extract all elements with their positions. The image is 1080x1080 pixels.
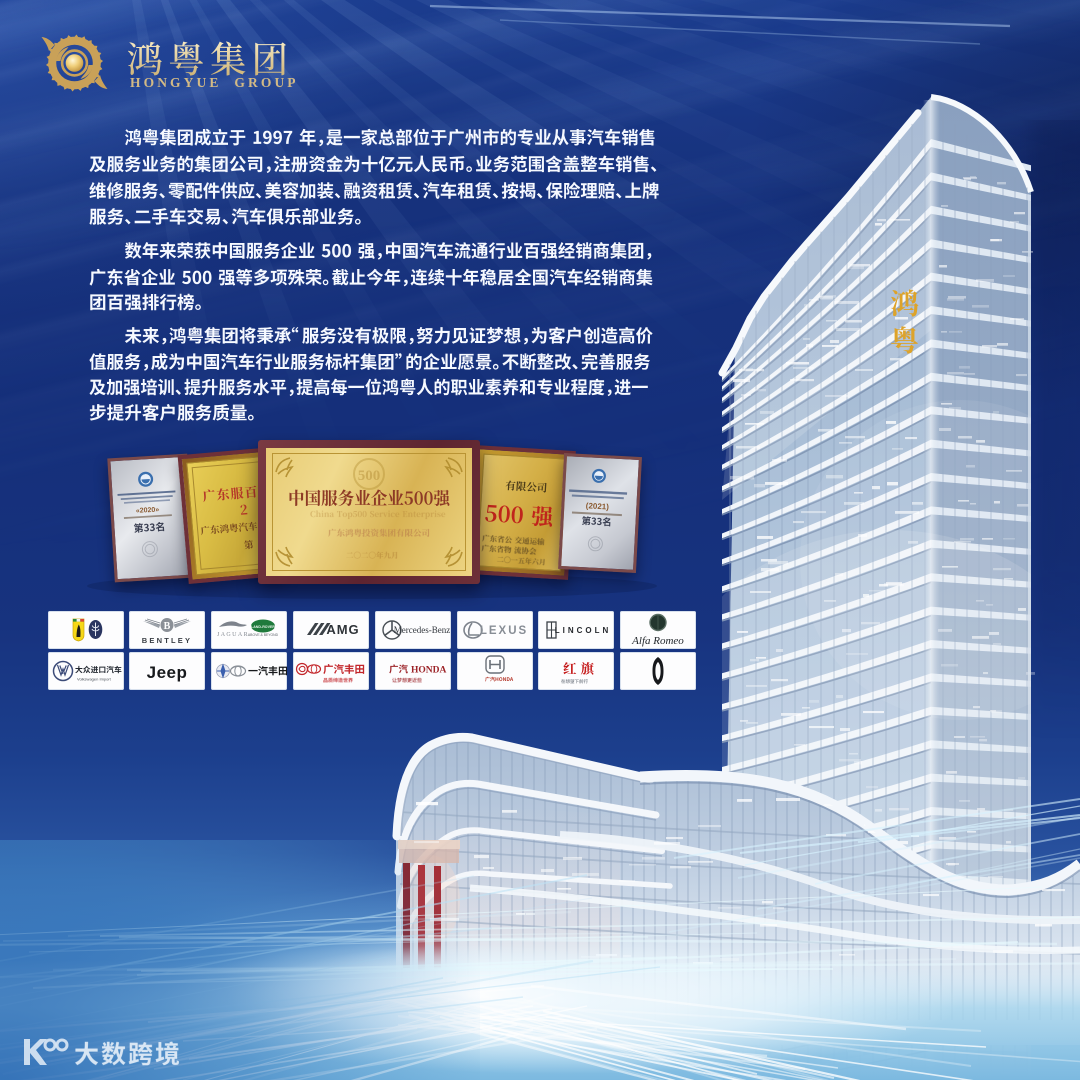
svg-text:JAGUAR: JAGUAR xyxy=(217,632,249,638)
svg-text:Mercedes-Benz: Mercedes-Benz xyxy=(394,625,450,635)
svg-text:Volkswagen Import: Volkswagen Import xyxy=(77,677,112,682)
svg-text:HONDA: HONDA xyxy=(411,666,447,676)
svg-text:LAND-ROVER: LAND-ROVER xyxy=(251,625,275,629)
svg-text:BENTLEY: BENTLEY xyxy=(142,636,192,645)
svg-text:ABOVE & BEYOND: ABOVE & BEYOND xyxy=(248,633,279,637)
svg-text:AMG: AMG xyxy=(326,622,359,637)
svg-text:B: B xyxy=(164,621,171,632)
svg-text:Jeep: Jeep xyxy=(147,663,188,682)
svg-text:LINCOLN: LINCOLN xyxy=(555,626,612,635)
svg-text:Alfa Romeo: Alfa Romeo xyxy=(631,635,684,647)
svg-text:LEXUS: LEXUS xyxy=(479,625,527,637)
